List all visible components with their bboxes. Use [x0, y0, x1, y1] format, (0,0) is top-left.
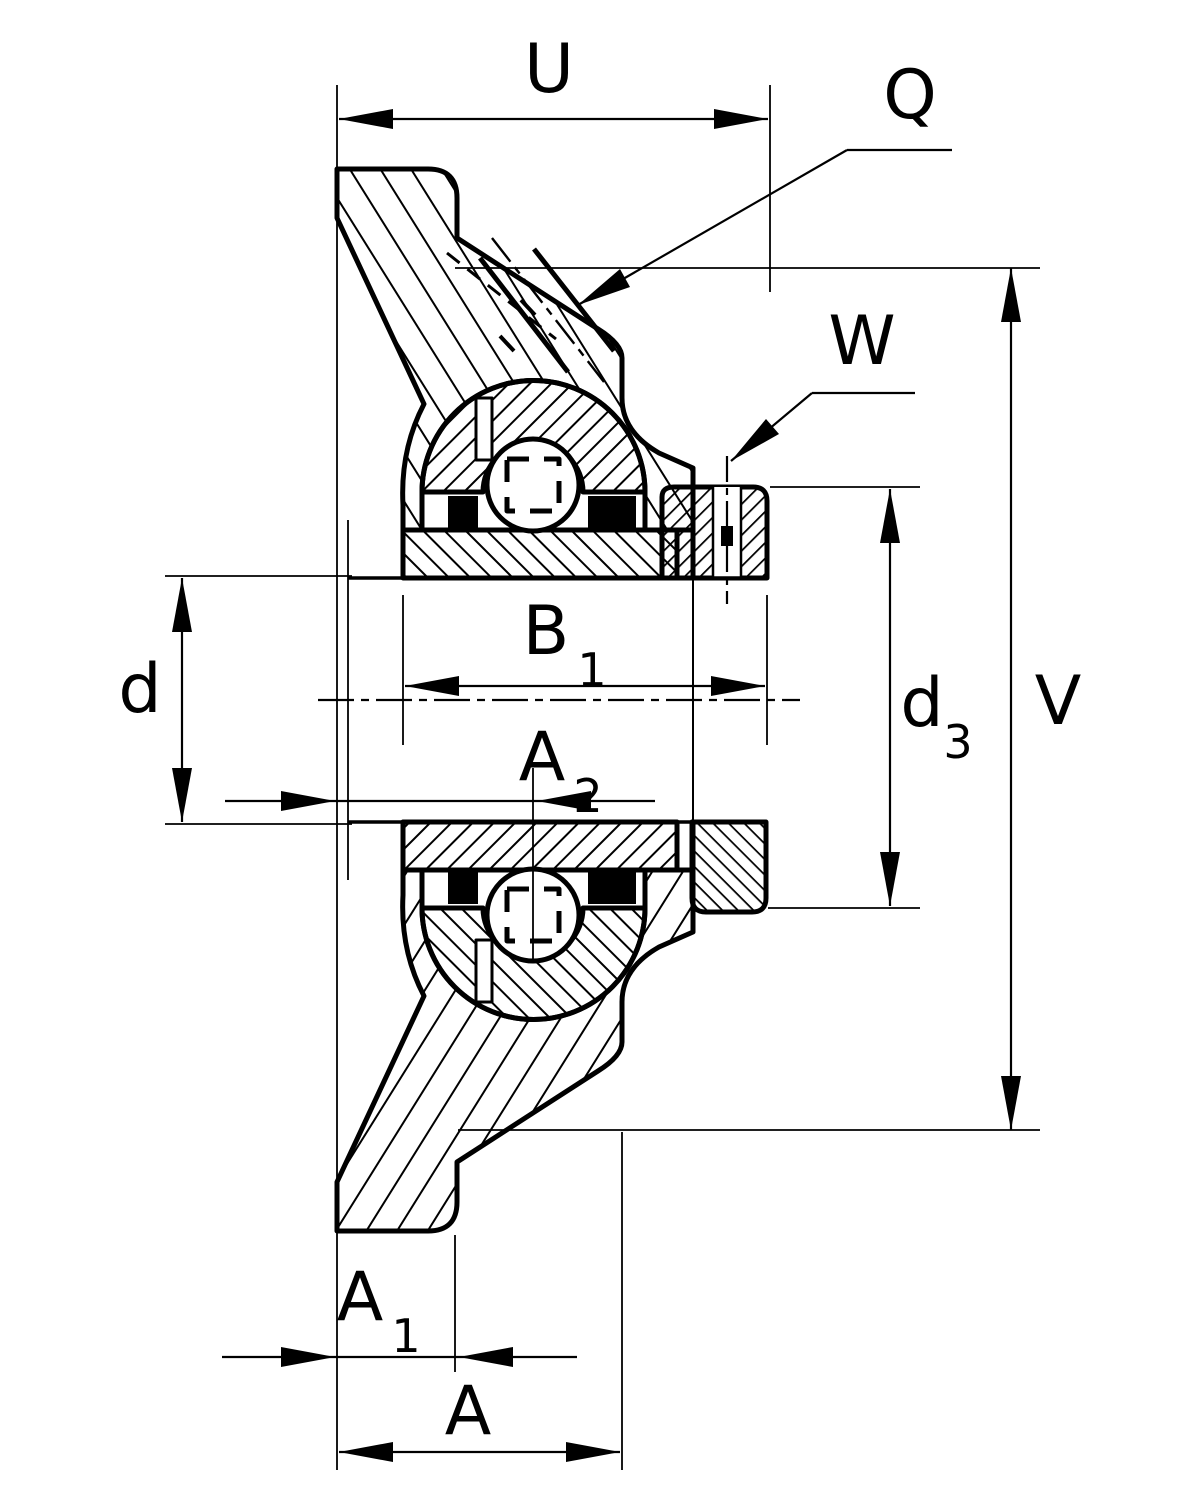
ball-top [487, 439, 579, 531]
inner-ring-bottom [403, 822, 677, 870]
label-w: W [828, 302, 895, 381]
label-d3-sub: 3 [943, 715, 972, 769]
label-a1-base: A [337, 1258, 384, 1337]
seal-top-left [448, 496, 478, 530]
label-b1-base: B [523, 592, 570, 671]
seal-bottom-right [588, 870, 636, 904]
label-v: V [1035, 662, 1082, 741]
label-q: Q [883, 56, 937, 135]
seal-bottom-left [448, 870, 478, 904]
label-d3-base: d [900, 664, 943, 743]
drawing-canvas: U Q W d B 1 A 2 d 3 V A 1 A [0, 0, 1200, 1500]
label-a2-base: A [519, 718, 566, 797]
locking-collar-bottom [692, 822, 766, 912]
lube-slot-top [476, 398, 492, 460]
inner-ring-top [403, 530, 677, 578]
label-b1-sub: 1 [577, 643, 606, 697]
label-a1-sub: 1 [391, 1309, 420, 1363]
label-a2-sub: 2 [573, 769, 602, 823]
label-u: U [524, 30, 574, 109]
label-a: A [445, 1372, 492, 1451]
seal-top-right [588, 496, 636, 530]
bearing-unit-section-drawing: U Q W d B 1 A 2 d 3 V A 1 A [0, 0, 1200, 1500]
label-d: d [118, 650, 161, 729]
background [0, 0, 1200, 1500]
lube-slot-bottom [476, 940, 492, 1002]
